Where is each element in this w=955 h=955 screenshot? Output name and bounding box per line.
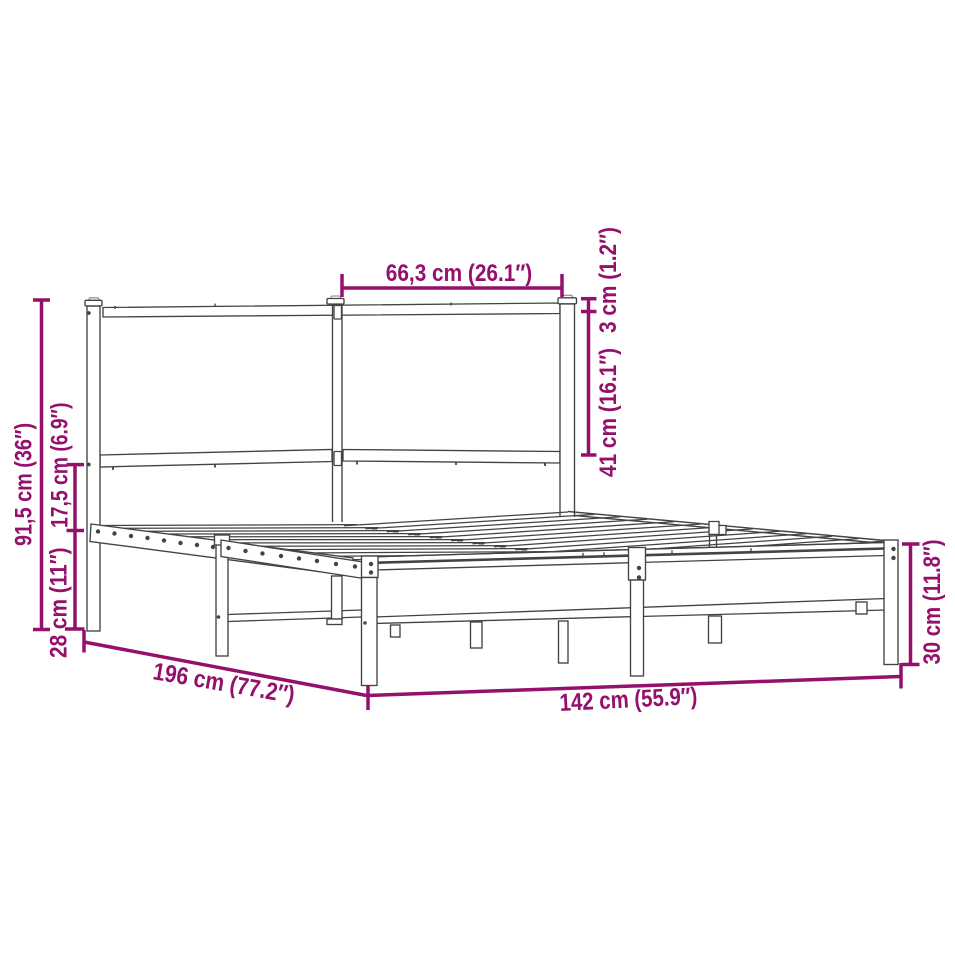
svg-text:30 cm (11.8″): 30 cm (11.8″) [918, 540, 945, 665]
svg-text:196 cm (77.2″): 196 cm (77.2″) [151, 657, 297, 709]
svg-text:91,5 cm (36″): 91,5 cm (36″) [10, 423, 37, 546]
svg-text:17,5 cm (6.9″): 17,5 cm (6.9″) [45, 403, 73, 528]
svg-text:41 cm (16.1″): 41 cm (16.1″) [593, 348, 621, 477]
svg-text:66,3 cm (26.1″): 66,3 cm (26.1″) [386, 258, 532, 286]
svg-text:142 cm (55.9″): 142 cm (55.9″) [559, 682, 698, 716]
svg-text:28 cm (11″): 28 cm (11″) [44, 547, 72, 658]
svg-text:3 cm (1.2″): 3 cm (1.2″) [593, 227, 621, 333]
